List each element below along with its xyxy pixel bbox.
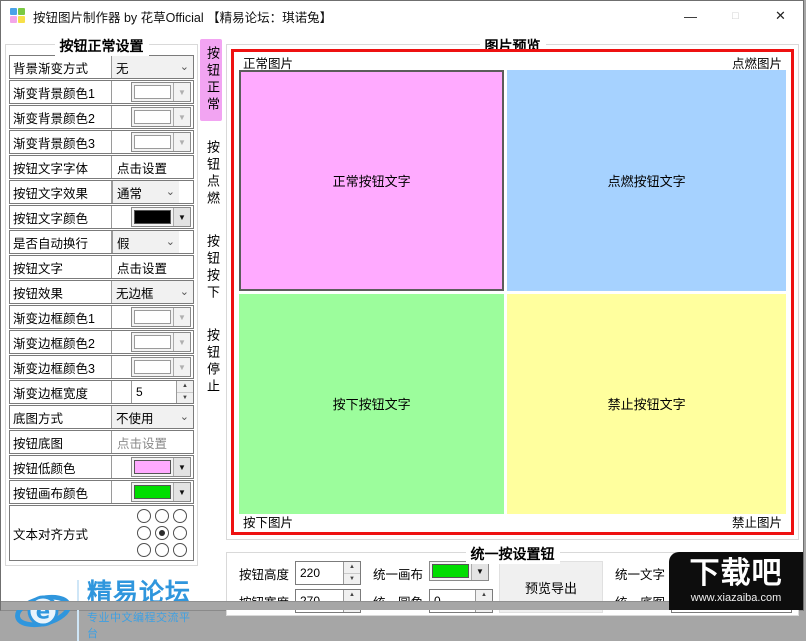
setting-label: 渐变边框宽度: [10, 381, 112, 403]
gradient-border-color1-picker: ▼: [131, 307, 191, 327]
setting-row: 按钮文字字体点击设置: [9, 155, 194, 179]
stepper-value: 5: [131, 381, 176, 403]
app-window: 按钮图片制作器 by 花草Official 【精易论坛：琪诺兔】 — □ ✕ 按…: [0, 0, 804, 611]
color-swatch: [134, 335, 171, 349]
color-swatch: [134, 485, 171, 499]
hover-preview[interactable]: 点燃按钮文字: [507, 70, 786, 291]
left-column: 按钮正常设置 背景渐变方式无⌄渐变背景颜色1▼渐变背景颜色2▼渐变背景颜色3▼按…: [5, 35, 198, 641]
chevron-down-icon: ⌄: [180, 62, 191, 72]
color-swatch: [134, 85, 171, 99]
align-radio-1[interactable]: [155, 509, 169, 523]
gradient-border-color2-picker: ▼: [131, 332, 191, 352]
settings-rows: 背景渐变方式无⌄渐变背景颜色1▼渐变背景颜色2▼渐变背景颜色3▼按钮文字字体点击…: [9, 55, 194, 504]
color-swatch: [134, 460, 171, 474]
right-column: 图片预览 正常图片 点燃图片 按下图片 禁止图片 正常按钮文字点燃按钮文字按下按…: [224, 35, 803, 641]
dropdown-value: 通常: [117, 183, 142, 202]
dropdown-arrow-icon: ▼: [173, 358, 190, 376]
tab-normal[interactable]: 按钮正常: [200, 39, 222, 121]
setting-label: 渐变背景颜色1: [10, 81, 112, 103]
watermark-brand: 下载吧: [690, 559, 783, 589]
jingyi-forum-logo[interactable]: e 精易论坛 专业中文编程交流平台: [15, 580, 198, 641]
forum-globe-icon: e: [15, 587, 71, 635]
color-swatch: [134, 310, 171, 324]
forum-logo-text: 精易论坛 专业中文编程交流平台: [77, 580, 198, 641]
setting-row: 底图方式不使用⌄: [9, 405, 194, 429]
text-color-picker[interactable]: ▼: [131, 207, 191, 227]
dropdown-arrow-icon: ▼: [173, 483, 190, 501]
align-radio-2[interactable]: [173, 509, 187, 523]
disabled-preview[interactable]: 禁止按钮文字: [507, 294, 786, 515]
dropdown-value: 假: [117, 233, 130, 252]
setting-row: 渐变边框颜色3▼: [9, 355, 194, 379]
text-effect-select[interactable]: 通常⌄: [112, 181, 179, 203]
button-height-stepper[interactable]: 220 ▲▼: [295, 561, 361, 585]
setting-label: 按钮文字: [10, 256, 112, 278]
gradient-border-color3-picker: ▼: [131, 357, 191, 377]
chevron-down-icon: ⌄: [166, 187, 177, 197]
base-image-setting[interactable]: 点击设置: [112, 431, 193, 453]
color-swatch: [134, 110, 171, 124]
app-icon: [10, 8, 26, 24]
stepper-arrows-icon[interactable]: ▲▼: [343, 562, 360, 584]
setting-row: 按钮画布颜色▼: [9, 480, 194, 504]
setting-row: 渐变边框颜色1▼: [9, 305, 194, 329]
setting-row: 按钮低颜色▼: [9, 455, 194, 479]
gradient-bg-color1-picker: ▼: [131, 82, 191, 102]
chevron-down-icon: ⌄: [180, 412, 191, 422]
gradient-bg-color3-picker: ▼: [131, 132, 191, 152]
dropdown-arrow-icon: ▼: [173, 308, 190, 326]
dropdown-arrow-icon: ▼: [173, 133, 190, 151]
xiazaiba-watermark: 下载吧 www.xiazaiba.com: [669, 552, 803, 610]
setting-row: 渐变边框宽度5▲▼: [9, 380, 194, 404]
dropdown-value: 无边框: [116, 283, 154, 302]
setting-label: 按钮低颜色: [10, 456, 112, 478]
button-low-color-picker[interactable]: ▼: [131, 457, 191, 477]
setting-row: 背景渐变方式无⌄: [9, 55, 194, 79]
setting-label: 按钮文字颜色: [10, 206, 112, 228]
color-swatch: [134, 360, 171, 374]
tab-stop[interactable]: 按钮停止: [200, 321, 222, 403]
dropdown-arrow-icon: ▼: [173, 108, 190, 126]
setting-label: 渐变边框颜色2: [10, 331, 112, 353]
dropdown-arrow-icon: ▼: [471, 562, 488, 580]
color-swatch: [432, 564, 469, 578]
forum-slogan: 专业中文编程交流平台: [87, 609, 198, 641]
align-radio-4[interactable]: [155, 526, 169, 540]
setting-label: 按钮底图: [10, 431, 112, 453]
preview-quadrants: 正常按钮文字点燃按钮文字按下按钮文字禁止按钮文字: [239, 70, 786, 514]
setting-row: 渐变边框颜色2▼: [9, 330, 194, 354]
window-title: 按钮图片制作器 by 花草Official 【精易论坛：琪诺兔】: [33, 7, 668, 26]
dropdown-arrow-icon: ▼: [173, 458, 190, 476]
text-align-radio-grid: [136, 508, 189, 559]
titlebar: 按钮图片制作器 by 花草Official 【精易论坛：琪诺兔】 — □ ✕: [1, 1, 803, 31]
align-radio-5[interactable]: [173, 526, 187, 540]
pressed-image-label: 按下图片: [243, 512, 293, 531]
maximize-button: □: [713, 1, 758, 31]
setting-label: 渐变边框颜色3: [10, 356, 112, 378]
dropdown-arrow-icon: ▼: [173, 208, 190, 226]
stepper-arrows-icon[interactable]: ▲▼: [176, 381, 193, 403]
color-swatch: [134, 135, 171, 149]
setting-label: 按钮效果: [10, 281, 112, 303]
gradient-bg-color2-picker: ▼: [131, 107, 191, 127]
dropdown-value: 无: [116, 58, 129, 77]
minimize-button[interactable]: —: [668, 1, 713, 31]
pressed-preview[interactable]: 按下按钮文字: [239, 294, 504, 515]
preview-frame: 正常图片 点燃图片 按下图片 禁止图片 正常按钮文字点燃按钮文字按下按钮文字禁止…: [231, 49, 794, 535]
tab-pressed[interactable]: 按钮按下: [200, 227, 222, 309]
unify-canvas-label: 统一画布: [367, 561, 423, 585]
unify-text-label: 统一文字: [609, 561, 665, 585]
normal-preview[interactable]: 正常按钮文字: [239, 70, 504, 291]
unify-group-title: 统一按设置钮: [466, 544, 560, 564]
setting-row: 渐变背景颜色3▼: [9, 130, 194, 154]
setting-label: 按钮画布颜色: [10, 481, 112, 503]
tab-hover[interactable]: 按钮点燃: [200, 133, 222, 215]
setting-row: 是否自动换行假⌄: [9, 230, 194, 254]
dropdown-arrow-icon: ▼: [173, 83, 190, 101]
setting-row: 按钮文字效果通常⌄: [9, 180, 194, 204]
setting-row: 渐变背景颜色2▼: [9, 105, 194, 129]
bg-gradient-mode-select[interactable]: 无⌄: [112, 56, 193, 78]
group-title: 按钮正常设置: [55, 36, 149, 56]
button-font-setting[interactable]: 点击设置: [112, 156, 193, 178]
text-align-row: 文本对齐方式: [9, 505, 194, 561]
setting-label: 背景渐变方式: [10, 56, 112, 78]
button-text-setting[interactable]: 点击设置: [112, 256, 193, 278]
setting-label: 按钮文字效果: [10, 181, 112, 203]
align-radio-3[interactable]: [137, 526, 151, 540]
unify-canvas-color-picker[interactable]: ▼: [429, 561, 489, 581]
normal-settings-group: 按钮正常设置 背景渐变方式无⌄渐变背景颜色1▼渐变背景颜色2▼渐变背景颜色3▼按…: [5, 44, 198, 566]
chevron-down-icon: ⌄: [180, 287, 191, 297]
setting-row: 按钮效果无边框⌄: [9, 280, 194, 304]
button-height-label: 按钮高度: [235, 561, 289, 585]
main-area: 按钮正常设置 背景渐变方式无⌄渐变背景颜色1▼渐变背景颜色2▼渐变背景颜色3▼按…: [1, 31, 803, 641]
base-image-mode-select[interactable]: 不使用⌄: [112, 406, 193, 428]
align-radio-0[interactable]: [137, 509, 151, 523]
chevron-down-icon: ⌄: [166, 237, 177, 247]
align-radio-7[interactable]: [155, 543, 169, 557]
image-preview-group: 图片预览 正常图片 点燃图片 按下图片 禁止图片 正常按钮文字点燃按钮文字按下按…: [226, 44, 799, 540]
dropdown-value: 不使用: [116, 408, 154, 427]
button-canvas-color-picker[interactable]: ▼: [131, 482, 191, 502]
watermark-url: www.xiazaiba.com: [691, 592, 781, 604]
auto-wrap-select[interactable]: 假⌄: [112, 231, 179, 253]
dropdown-arrow-icon: ▼: [173, 333, 190, 351]
color-swatch: [134, 210, 171, 224]
setting-row: 按钮文字点击设置: [9, 255, 194, 279]
setting-label: 渐变背景颜色3: [10, 131, 112, 153]
text-align-label: 文本对齐方式: [10, 524, 136, 543]
setting-row: 按钮文字颜色▼: [9, 205, 194, 229]
align-radio-6[interactable]: [137, 543, 151, 557]
setting-label: 是否自动换行: [10, 231, 112, 253]
disabled-image-label: 禁止图片: [732, 512, 782, 531]
setting-label: 渐变背景颜色2: [10, 106, 112, 128]
setting-label: 渐变边框颜色1: [10, 306, 112, 328]
setting-label: 底图方式: [10, 406, 112, 428]
setting-row: 按钮底图点击设置: [9, 430, 194, 454]
align-radio-8[interactable]: [173, 543, 187, 557]
state-tabstrip: 按钮正常按钮点燃按钮按下按钮停止: [198, 35, 224, 641]
setting-row: 渐变背景颜色1▼: [9, 80, 194, 104]
button-effect-select[interactable]: 无边框⌄: [112, 281, 193, 303]
border-width-stepper[interactable]: 5▲▼: [131, 381, 193, 403]
setting-label: 按钮文字字体: [10, 156, 112, 178]
close-button[interactable]: ✕: [758, 1, 803, 31]
button-height-value: 220: [296, 562, 343, 584]
